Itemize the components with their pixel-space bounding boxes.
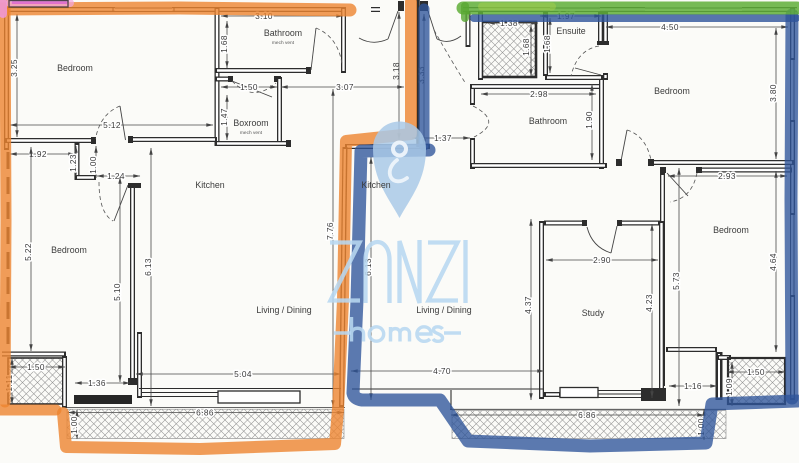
svg-text:Bedroom: Bedroom — [654, 86, 690, 96]
svg-text:1.47: 1.47 — [219, 108, 229, 126]
svg-text:1.92: 1.92 — [29, 149, 47, 159]
svg-text:6.13: 6.13 — [143, 258, 153, 276]
svg-text:1.90: 1.90 — [584, 111, 594, 129]
svg-text:1.23: 1.23 — [68, 154, 78, 172]
svg-text:4.23: 4.23 — [644, 294, 654, 312]
svg-text:4.37: 4.37 — [523, 296, 533, 314]
svg-text:1.16: 1.16 — [684, 381, 702, 391]
svg-text:Ensuite: Ensuite — [556, 26, 585, 36]
svg-text:1.50: 1.50 — [747, 367, 765, 377]
svg-text:5.12: 5.12 — [103, 120, 121, 130]
svg-text:4.64: 4.64 — [768, 253, 778, 271]
svg-text:1.00: 1.00 — [88, 156, 98, 174]
svg-text:1.68: 1.68 — [542, 35, 552, 53]
svg-text:4.70: 4.70 — [433, 366, 451, 376]
svg-text:Kitchen: Kitchen — [361, 180, 390, 190]
svg-text:1.50: 1.50 — [240, 82, 258, 92]
svg-text:2.90: 2.90 — [593, 255, 611, 265]
svg-text:Bedroom: Bedroom — [51, 245, 87, 255]
svg-text:1.68: 1.68 — [521, 38, 531, 56]
svg-text:Bathroom: Bathroom — [529, 116, 567, 126]
svg-text:2.98: 2.98 — [530, 89, 548, 99]
svg-text:Living / Dining: Living / Dining — [256, 305, 311, 315]
svg-text:Boxroom: Boxroom — [233, 118, 268, 128]
svg-text:1.24: 1.24 — [107, 171, 125, 181]
svg-text:mech vent: mech vent — [272, 40, 295, 46]
svg-text:5.22: 5.22 — [23, 243, 33, 261]
svg-text:1.09: 1.09 — [724, 378, 734, 396]
svg-text:Bedroom: Bedroom — [57, 63, 93, 73]
svg-text:4.50: 4.50 — [661, 22, 679, 32]
svg-text:Kitchen: Kitchen — [195, 180, 224, 190]
svg-text:1.37: 1.37 — [434, 133, 452, 143]
svg-text:1.50: 1.50 — [27, 362, 45, 372]
svg-text:Bedroom: Bedroom — [713, 225, 749, 235]
svg-text:Bathroom: Bathroom — [264, 28, 302, 38]
svg-text:5.73: 5.73 — [671, 272, 681, 290]
svg-text:5.04: 5.04 — [234, 369, 252, 379]
svg-text:Living / Dining: Living / Dining — [416, 305, 471, 315]
svg-text:1.68: 1.68 — [219, 35, 229, 53]
svg-text:mech vent: mech vent — [240, 130, 263, 136]
svg-text:5.10: 5.10 — [112, 283, 122, 301]
svg-text:7.76: 7.76 — [325, 222, 335, 240]
svg-text:Study: Study — [582, 308, 605, 318]
svg-text:6.86: 6.86 — [578, 410, 596, 420]
svg-text:3.80: 3.80 — [768, 84, 778, 102]
svg-text:2.93: 2.93 — [718, 171, 736, 181]
svg-text:6.86: 6.86 — [196, 408, 214, 418]
svg-text:3.07: 3.07 — [336, 82, 354, 92]
svg-text:3.18: 3.18 — [391, 62, 401, 80]
svg-text:1.36: 1.36 — [88, 378, 106, 388]
